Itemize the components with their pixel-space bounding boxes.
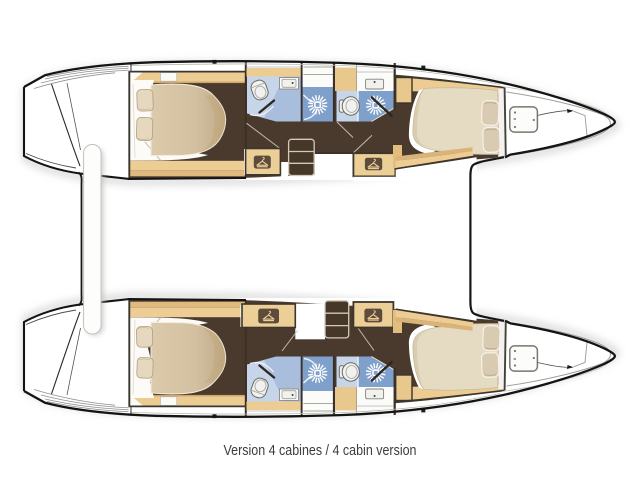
svg-text:Version 4 cabines / 4 cabin ve: Version 4 cabines / 4 cabin version [224, 442, 417, 459]
